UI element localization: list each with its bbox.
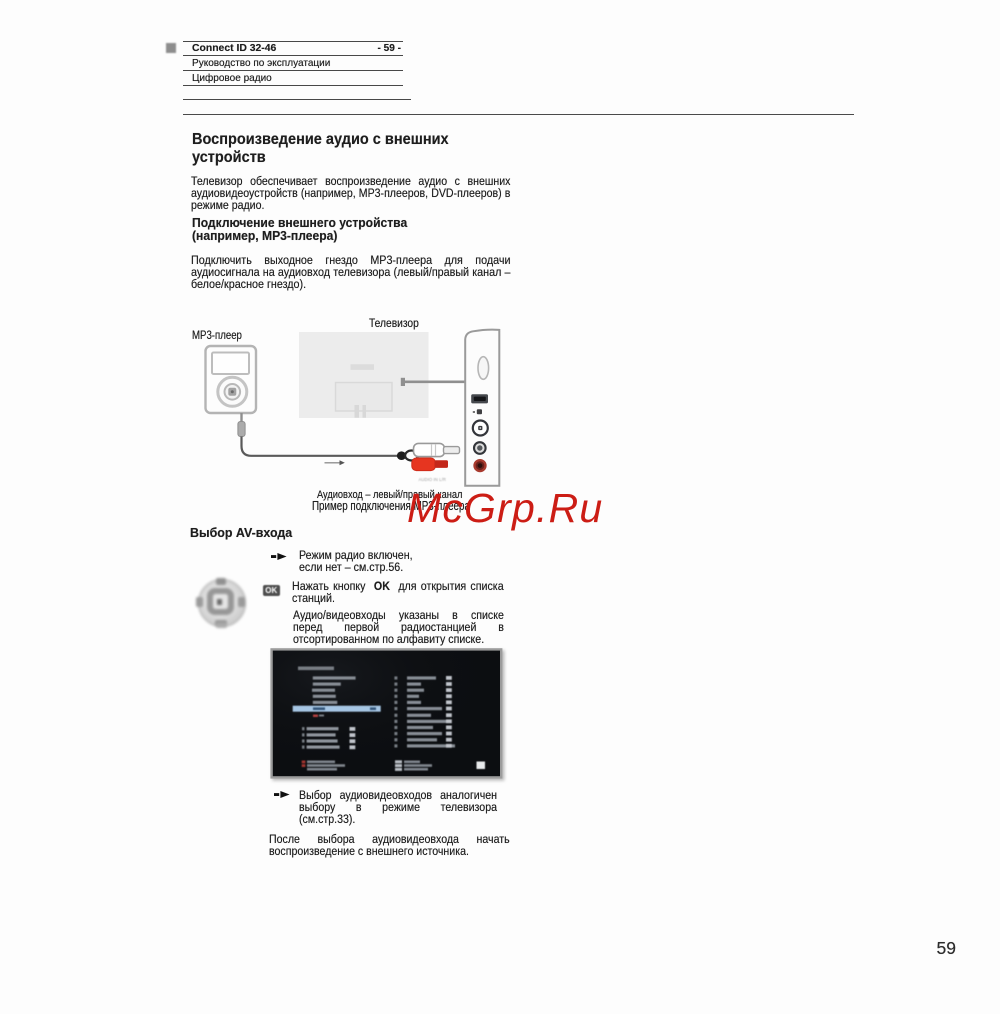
svg-text:AUDIO IN L/R: AUDIO IN L/R — [419, 477, 447, 482]
